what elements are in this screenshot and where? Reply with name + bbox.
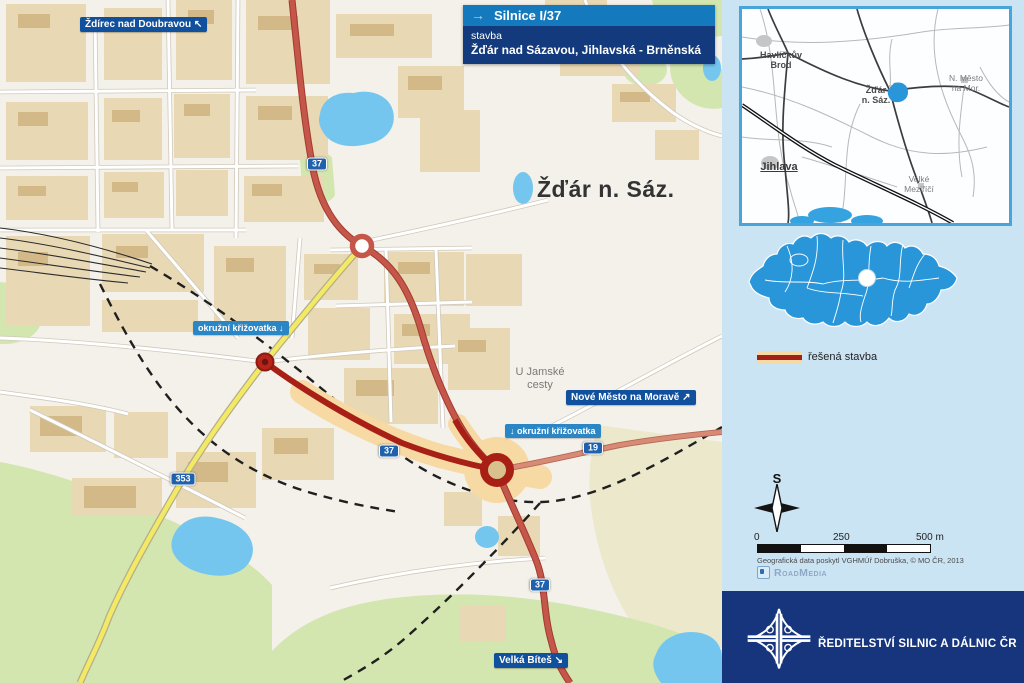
roundabout-label-west: okružní křižovatka ↓ (193, 321, 289, 335)
roadmedia-icon (757, 566, 770, 579)
country-locator-map (743, 228, 963, 334)
route-arrow-icon: → (471, 5, 485, 26)
route-title: Silnice I/37 (494, 5, 561, 26)
scale-end: 500 m (916, 532, 944, 543)
footer (722, 591, 1024, 683)
road-badge-37-south: 37 (530, 579, 550, 592)
overview-water (790, 207, 883, 223)
roundabout-main (484, 457, 510, 483)
roadmedia-brand: RoadMedia (757, 566, 827, 579)
title-header: → Silnice I/37 (463, 5, 715, 26)
main-map-canvas (0, 0, 722, 683)
title-subtitle: stavba Žďár nad Sázavou, Jihlavská - Brn… (463, 26, 715, 64)
city-label: Žďár n. Sáz. (537, 176, 675, 203)
overview-label-nove-mesto: N. Město na Mor. (949, 73, 983, 93)
overview-label-zdar: Žďár n. Sáz. (862, 85, 891, 105)
overview-map-canvas (742, 9, 1009, 223)
roundabout-label-main: ↓ okružní křižovatka (505, 424, 601, 438)
map-sheet: → Silnice I/37 stavba Žďár nad Sázavou, … (0, 0, 1024, 683)
area-label-u-jamske: U Jamské cesty (516, 366, 565, 392)
overview-label-velke-mezirici: Velké Meziříčí (904, 174, 934, 194)
overview-map: Havlíčkův Brod Žďár n. Sáz. N. Město na … (739, 6, 1012, 226)
organization-name: ŘEDITELSTVÍ SILNIC A DÁLNIC ČR (818, 638, 1017, 650)
scale-middle: 250 (833, 532, 850, 543)
legend-swatch-construction (757, 351, 802, 364)
location-marker (859, 270, 876, 287)
direction-label-velka-bites: Velká Bíteš ↘ (494, 653, 568, 668)
overview-label-havlickuv-brod: Havlíčkův Brod (760, 50, 802, 70)
legend-label: řešená stavba (808, 351, 877, 363)
scale-start: 0 (754, 532, 760, 543)
direction-label-zdirec: Ždírec nad Doubravou ↖ (80, 17, 207, 32)
rsd-logo-icon (746, 599, 812, 675)
roundabout-north (353, 237, 372, 256)
road-badge-353: 353 (170, 473, 195, 486)
title-box: → Silnice I/37 stavba Žďár nad Sázavou, … (463, 5, 715, 64)
roadmedia-label: RoadMedia (774, 567, 827, 579)
scale-bar (757, 544, 931, 553)
construction-type: stavba (471, 30, 707, 43)
road-badge-37-north: 37 (307, 158, 327, 171)
road-badge-37-west: 37 (379, 445, 399, 458)
geodata-attribution: Geografická data poskytl VGHMÚř Dobruška… (757, 556, 964, 565)
road-badge-19: 19 (583, 442, 603, 455)
overview-label-jihlava: Jihlava (760, 162, 797, 172)
overview-main-roads (742, 9, 1009, 223)
compass-icon (752, 484, 802, 532)
direction-label-nove-mesto: Nové Město na Moravě ↗ (566, 390, 696, 405)
construction-name: Žďár nad Sázavou, Jihlavská - Brněnská (471, 43, 707, 58)
